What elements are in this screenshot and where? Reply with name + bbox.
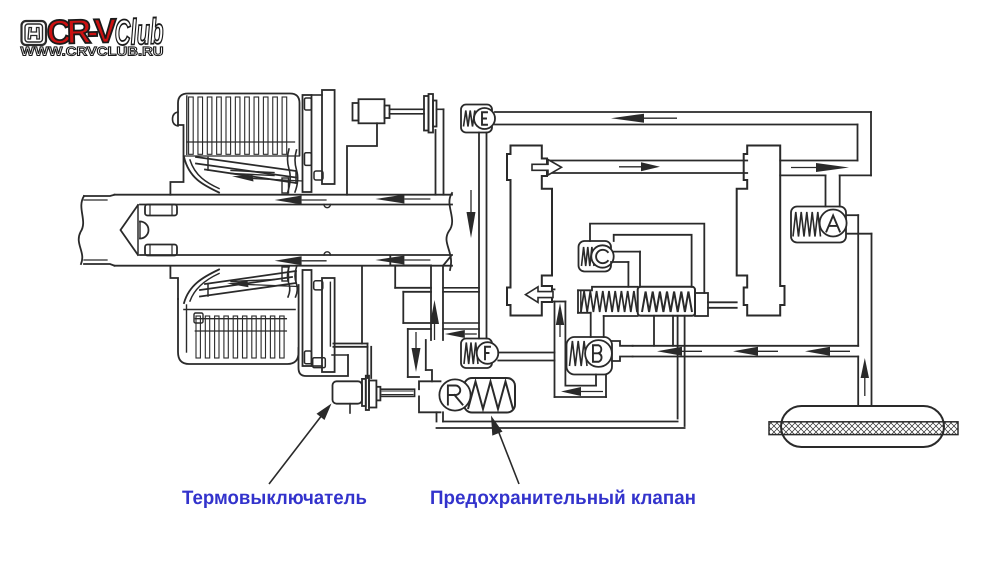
- svg-text:Термовыключатель: Термовыключатель: [182, 487, 367, 509]
- svg-text:WWW.CRVCLUB.RU: WWW.CRVCLUB.RU: [21, 45, 164, 59]
- svg-text:Предохранительный клапан: Предохранительный клапан: [430, 487, 696, 509]
